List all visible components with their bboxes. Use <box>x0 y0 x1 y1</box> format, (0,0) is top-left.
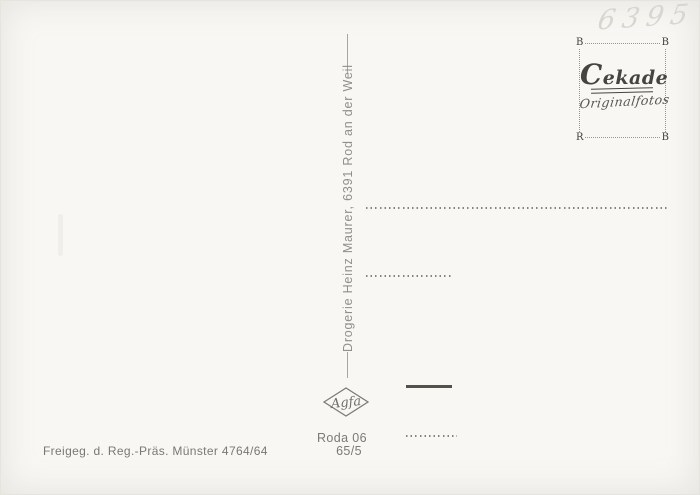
divider-rule-bottom <box>347 352 348 378</box>
address-solid-line <box>406 385 452 388</box>
print-code-line1: Roda 06 <box>303 431 367 445</box>
handwritten-number: 6395 <box>595 0 697 37</box>
agfa-diamond-logo: Agfa <box>323 387 369 417</box>
stamp-subtitle: Originalfotos <box>579 92 667 111</box>
scan-smudge <box>58 214 63 256</box>
approval-imprint: Freigeg. d. Reg.-Präs. Münster 4764/64 <box>43 444 268 458</box>
publisher-imprint: Drogerie Heinz Maurer, 6391 Rod an der W… <box>338 72 358 352</box>
address-dotted-line-2 <box>366 275 451 277</box>
stamp-corner-letter: B <box>661 133 670 143</box>
address-dotted-line-3 <box>406 435 457 437</box>
stamp-corner-letter: B <box>575 38 584 48</box>
stamp-box: B B R B Cekade Originalfotos <box>579 43 666 138</box>
stamp-corner-letter: R <box>575 133 585 143</box>
address-dotted-line-1 <box>366 207 669 209</box>
stamp-corner-letter: B <box>661 38 670 48</box>
print-code-line2: 65/5 <box>303 444 362 458</box>
postcard-back: 6395 B B R B Cekade Originalfotos Droger… <box>0 0 700 495</box>
